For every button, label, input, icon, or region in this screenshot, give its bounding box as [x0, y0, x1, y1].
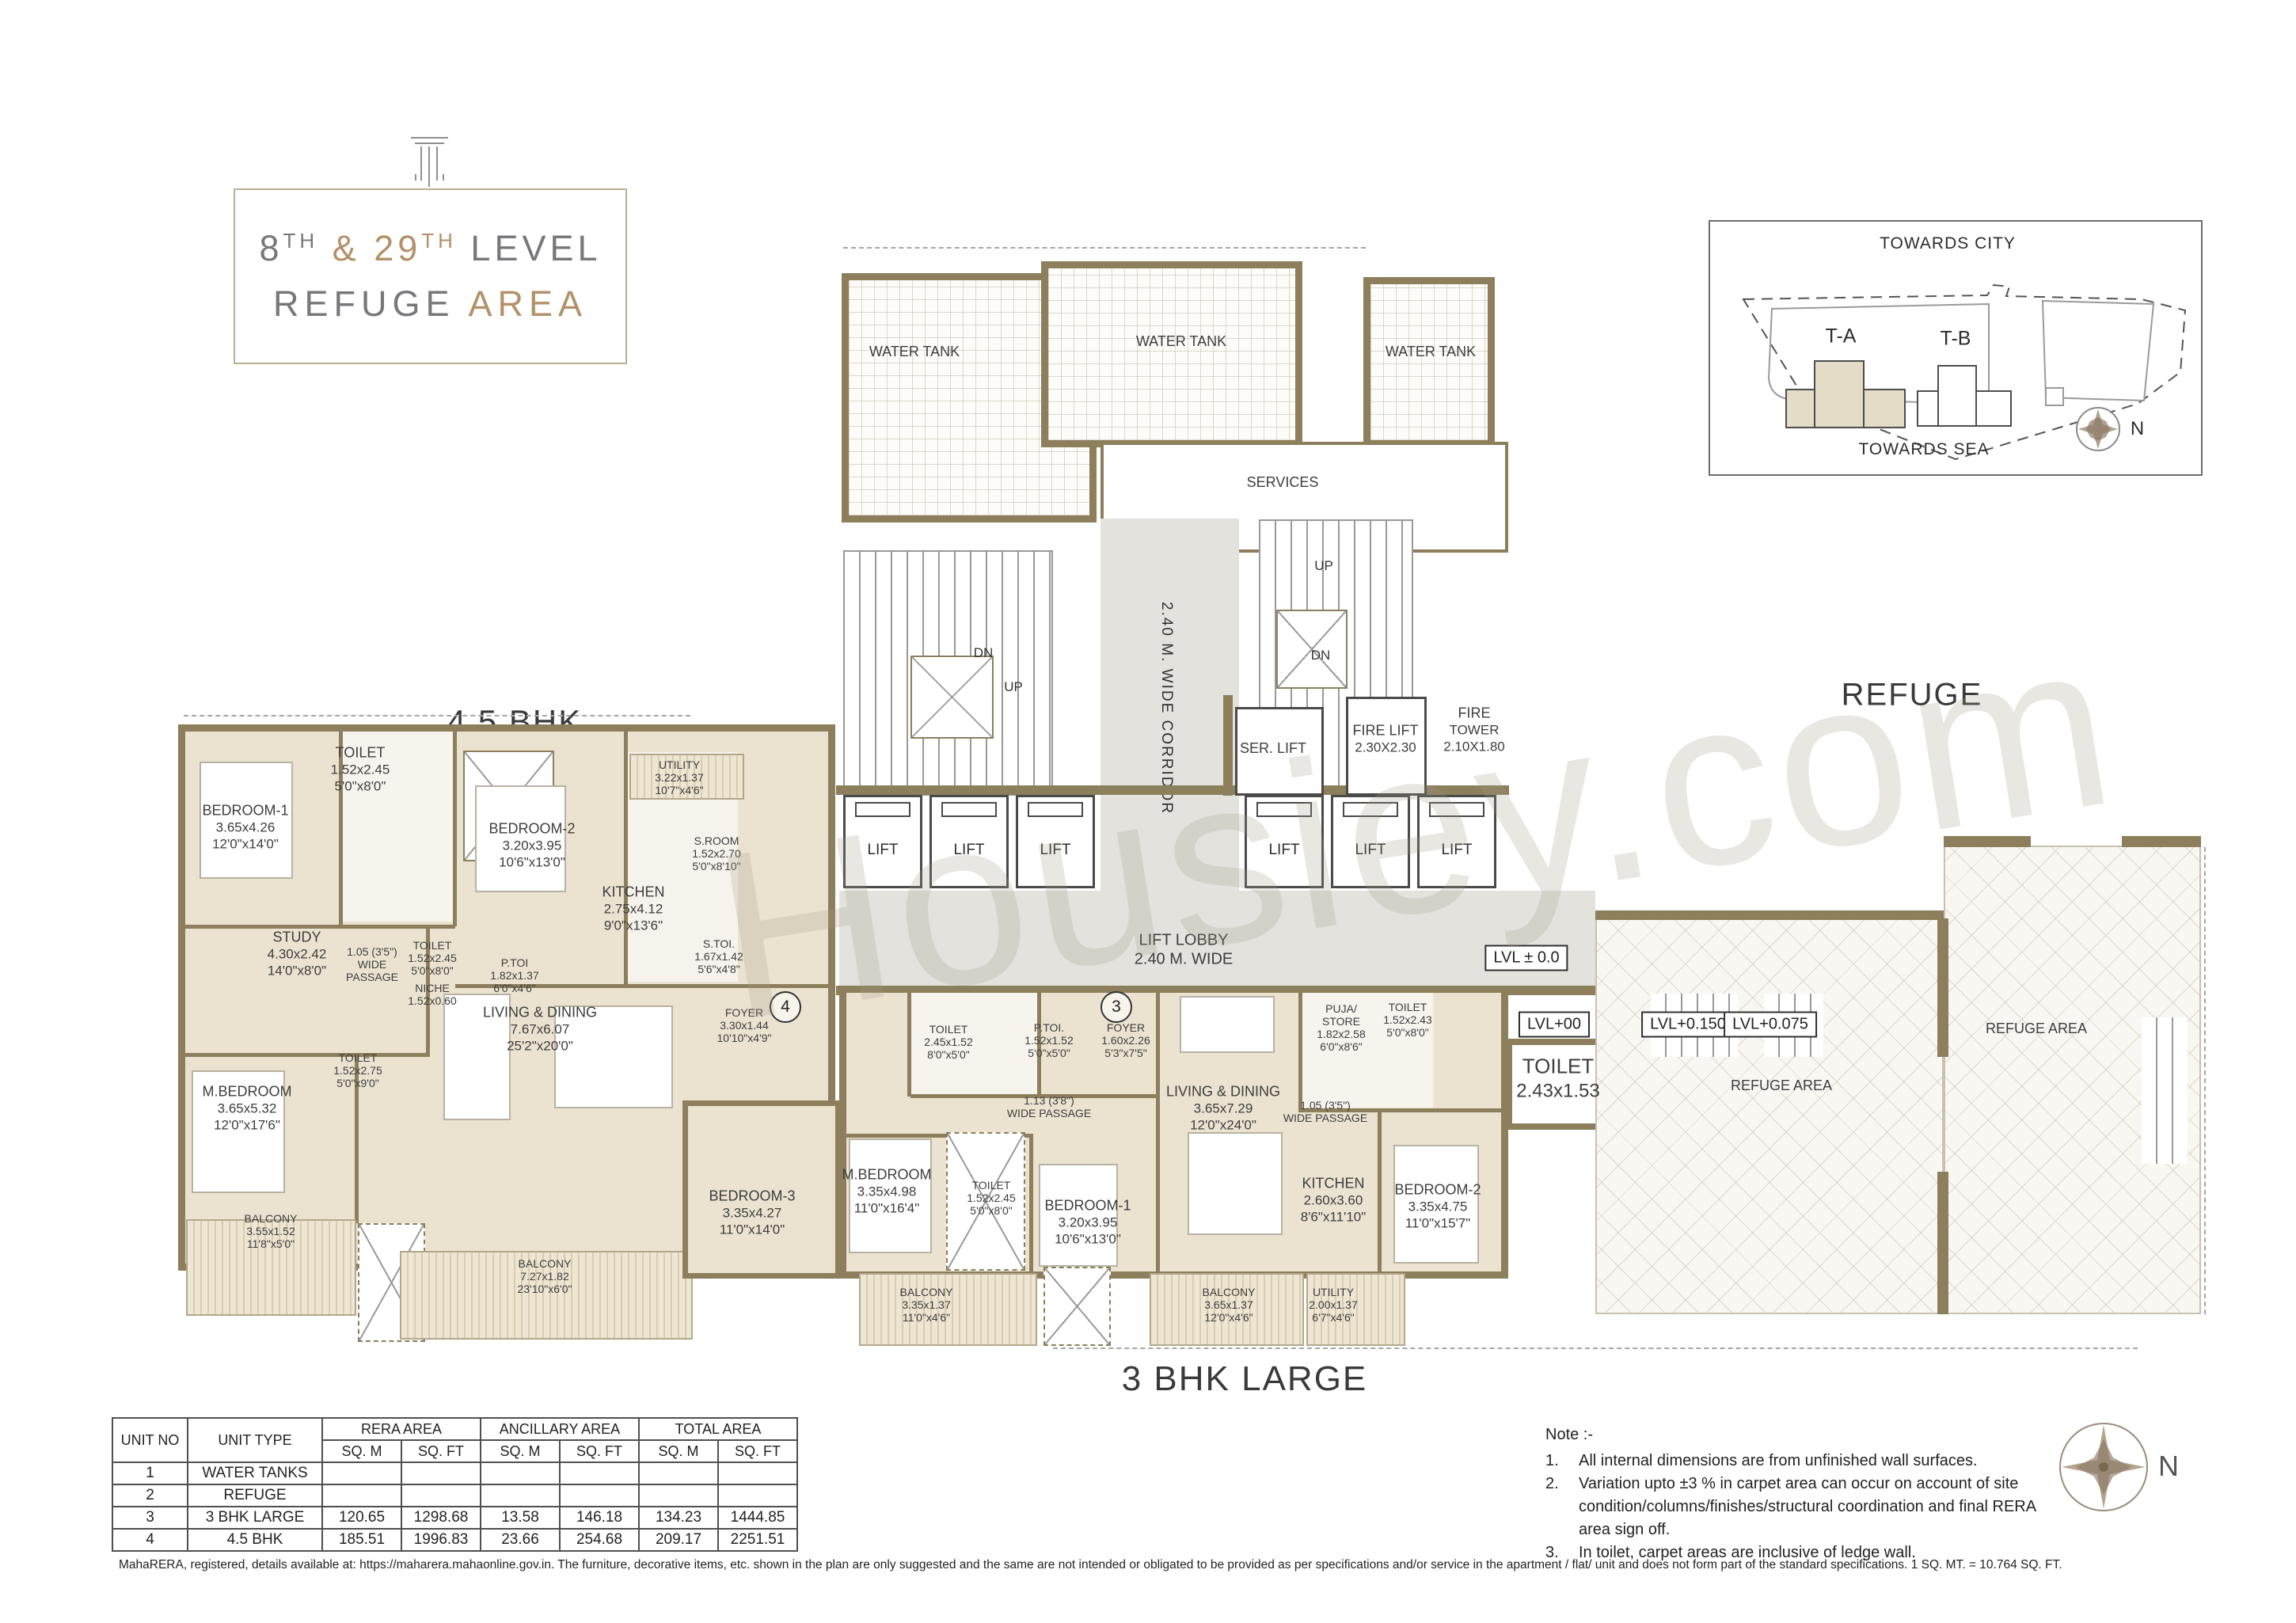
room-label-toilet-r2: TOILET1.52x2.455'0"x8'0" — [967, 1179, 1016, 1217]
room-label-passage-r1: 1.13 (3'8")WIDE PASSAGE — [1007, 1094, 1091, 1119]
table-cell: 1996.83 — [401, 1529, 481, 1551]
key-plan-north-label: N — [2131, 418, 2145, 440]
shaft-right-balcony — [1043, 1267, 1111, 1346]
room-label-living-dining-l: LIVING & DINING7.67x6.0725'2"x20'0" — [483, 1004, 597, 1054]
table-cell — [560, 1462, 639, 1484]
table-cell: 185.51 — [322, 1529, 401, 1551]
room-label-utility-l: UTILITY3.22x1.3710'7"x4'6" — [655, 758, 704, 796]
room-label-toilet-mid-l: TOILET1.52x2.455'0"x8'0" — [408, 939, 457, 977]
lift-3: LIFT — [1016, 795, 1095, 888]
room-label-foyer-l: FOYER3.30x1.4410'10"x4'9" — [717, 1006, 771, 1044]
stair-label-dn-0: DN — [974, 645, 994, 661]
room-label-water-tank-3: WATER TANK — [1386, 344, 1476, 361]
zone-label-refuge: REFUGE — [1842, 678, 1983, 713]
plan-dashed-line — [1053, 1347, 2138, 1349]
col-subheader: SQ. FT — [401, 1440, 481, 1462]
lift-5: LIFT — [1331, 795, 1410, 888]
table-cell — [718, 1462, 797, 1484]
table-cell: 13.58 — [481, 1507, 560, 1529]
room-label-balcony-r1: BALCONY3.35x1.3711'0"x4'6" — [900, 1286, 953, 1324]
room-label-foyer-r: FOYER1.60x2.265'3"x7'5" — [1101, 1021, 1150, 1059]
room-label-balcony-r2: BALCONY3.65x1.3712'0"x4'6" — [1203, 1286, 1256, 1324]
col-header: UNIT NO — [112, 1418, 188, 1462]
dining-table — [1180, 996, 1275, 1053]
zone-label-right-wing: 3 BHK LARGE — [1122, 1359, 1368, 1399]
water-tank-3-area — [1363, 277, 1495, 447]
table-cell: 134.23 — [639, 1507, 718, 1529]
room-label-balcony-l2: BALCONY7.27x1.8223'10"x6'0" — [517, 1257, 572, 1295]
room-label-m-bedroom-l: M.BEDROOM3.65x5.3212'0"x17'6" — [202, 1083, 291, 1133]
table-row-2: 2REFUGE — [112, 1484, 797, 1507]
refuge-louvers — [2142, 1017, 2188, 1164]
room-label-puja-store: PUJA/STORE1.82x2.586'0"x8'6" — [1317, 1002, 1366, 1053]
room-label-bedroom-1-l: BEDROOM-13.65x4.2612'0"x14'0" — [202, 802, 288, 852]
wall — [178, 925, 455, 929]
room-label-s-room: S.ROOM1.52x2.705'0"x8'10" — [692, 834, 741, 872]
key-plan-towards-sea: TOWARDS SEA — [1858, 440, 1989, 459]
room-label-bedroom-1-r: BEDROOM-13.20x3.9510'6"x13'0" — [1044, 1197, 1131, 1247]
wall — [1156, 986, 1160, 1279]
room-label-bedroom-2-r: BEDROOM-23.35x4.7511'0"x15'7" — [1394, 1181, 1481, 1231]
lift-6: LIFT — [1417, 795, 1496, 888]
col-subheader: SQ. M — [639, 1440, 718, 1462]
room-label-ser-lift: SER. LIFT — [1240, 740, 1306, 758]
wall — [2122, 836, 2201, 847]
table-cell: 120.65 — [322, 1507, 401, 1529]
room-label-bedroom-2-l: BEDROOM-23.20x3.9510'6"x13'0" — [488, 820, 575, 870]
room-label-toilet-low-l: TOILET1.52x2.755'0"x9'0" — [333, 1051, 382, 1089]
lift-2: LIFT — [929, 795, 1009, 888]
refuge-area-main — [1595, 918, 1944, 1314]
plan-dashed-line — [2204, 847, 2206, 1314]
table-cell: 4 — [112, 1529, 188, 1551]
level-marker-1: LVL ± 0.0 — [1484, 945, 1568, 971]
note-item-2: 2.Variation upto ±3 % in carpet area can… — [1545, 1473, 2052, 1541]
room-label-toilet-refuge: TOILET2.43x1.53 — [1516, 1055, 1599, 1103]
col-header: UNIT TYPE — [188, 1418, 322, 1462]
table-cell: 3 — [112, 1507, 188, 1529]
column-icon — [400, 135, 459, 190]
room-label-water-tank-1: WATER TANK — [869, 344, 960, 361]
page-title-line2: REFUGE AREA — [273, 283, 587, 325]
key-plan-tower-b: T-B — [1941, 328, 1971, 351]
level-marker-2: LVL+00 — [1519, 1012, 1590, 1038]
room-label-p-toi-l: P.TOI1.82x1.376'0"x4'6" — [490, 956, 539, 994]
wall — [907, 986, 911, 1097]
table-cell — [481, 1484, 560, 1507]
table-cell: WATER TANKS — [188, 1462, 322, 1484]
wall — [1378, 1112, 1382, 1279]
table-cell — [639, 1484, 718, 1507]
room-label-p-toi-r: P.TOI.1.52x1.525'0"x5'0" — [1024, 1021, 1074, 1059]
table-row-1: 1WATER TANKS — [112, 1462, 797, 1484]
room-label-kitchen-r: KITCHEN2.60x3.608'6"x11'10" — [1301, 1175, 1367, 1225]
table-cell: 3 BHK LARGE — [188, 1507, 322, 1529]
table-row-3: 33 BHK LARGE120.651298.6813.58146.18134.… — [112, 1507, 797, 1529]
table-cell: 254.68 — [560, 1529, 639, 1551]
lift-4: LIFT — [1245, 795, 1324, 888]
wall — [1298, 986, 1302, 1112]
wall — [624, 724, 628, 986]
table-cell: 23.66 — [481, 1529, 560, 1551]
table-cell: 2 — [112, 1484, 188, 1507]
table-cell — [322, 1484, 401, 1507]
table-cell — [401, 1462, 481, 1484]
key-plan-tower-a: T-A — [1826, 325, 1857, 348]
table-cell: 2251.51 — [718, 1529, 797, 1551]
notes-block: Note :- 1.All internal dimensions are fr… — [1545, 1423, 2052, 1564]
col-header: ANCILLARY AREA — [481, 1418, 639, 1440]
col-subheader: SQ. FT — [718, 1440, 797, 1462]
room-label-utility-r: UTILITY2.00x1.376'7"x4'6" — [1309, 1286, 1358, 1324]
room-label-living-dining-r: LIVING & DINING3.65x7.2912'0"x24'0" — [1166, 1083, 1280, 1133]
room-label-bedroom-3-r: BEDROOM-33.35x4.2711'0"x14'0" — [709, 1188, 795, 1237]
table-cell: 4.5 BHK — [188, 1529, 322, 1551]
room-label-study: STUDY4.30x2.4214'0"x8'0" — [268, 929, 327, 979]
room-label-balcony-l1: BALCONY3.55x1.5211'8"x5'0" — [245, 1212, 298, 1250]
col-subheader: SQ. M — [322, 1440, 401, 1462]
col-subheader: SQ. M — [481, 1440, 560, 1462]
table-cell — [560, 1484, 639, 1507]
plan-dashed-line — [843, 247, 1366, 249]
corridor-label: 2.40 M. WIDE CORRIDOR — [1158, 602, 1175, 815]
table-cell — [322, 1462, 401, 1484]
water-tank-2-area — [1041, 261, 1302, 447]
table-cell — [639, 1462, 718, 1484]
key-plan: TOWARDS CITY T-A T-B TOWARDS SEA N — [1709, 220, 2203, 476]
col-header: RERA AREA — [322, 1418, 481, 1440]
wall — [1595, 910, 1944, 920]
disclaimer-text: MahaRERA, registered, details available … — [119, 1558, 2288, 1572]
room-label-refuge-area-2: REFUGE AREA — [1986, 1021, 2087, 1038]
wall — [1937, 1172, 1948, 1314]
table-cell — [401, 1484, 481, 1507]
room-label-s-toi: S.TOI.1.67x1.425'6"x4'8" — [694, 937, 743, 975]
key-plan-towards-city: TOWARDS CITY — [1880, 234, 2016, 253]
title-box: 8TH & 29TH LEVEL REFUGE AREA — [234, 188, 627, 364]
room-label-toilet-r3: TOILET1.52x2.435'0"x8'0" — [1383, 1001, 1432, 1039]
wall — [1944, 836, 2031, 847]
room-label-kitchen-l: KITCHEN2.75x4.129'0"x13'6" — [602, 884, 664, 933]
table-row-4: 44.5 BHK185.511996.8323.66254.68209.1722… — [112, 1529, 797, 1551]
compass-north-label: N — [2158, 1450, 2180, 1483]
table-cell: 1298.68 — [401, 1507, 481, 1529]
page-title-line1: 8TH & 29TH LEVEL — [259, 228, 601, 269]
wall — [1937, 918, 1948, 1057]
table-cell — [718, 1484, 797, 1507]
level-marker-4: LVL+0.075 — [1724, 1012, 1817, 1038]
room-label-services: SERVICES — [1247, 474, 1319, 492]
floor-plan-canvas: Housiey.com 8TH & 29TH LEVEL REFUGE AREA… — [0, 0, 2296, 1623]
room-label-water-tank-2: WATER TANK — [1136, 333, 1226, 351]
wall — [453, 724, 457, 926]
room-label-toilet-top-l: TOILET1.52x2.455'0"x8'0" — [331, 744, 390, 794]
room-label-fire-lift: FIRE LIFT2.30X2.30 — [1352, 723, 1418, 757]
room-label-passage-l: 1.05 (3'5")WIDEPASSAGE — [346, 945, 398, 983]
lift-1: LIFT — [843, 795, 922, 888]
unit-marker-3: 3 — [1100, 991, 1132, 1023]
room-label-toilet-r1: TOILET2.45x1.528'0"x5'0" — [924, 1023, 973, 1061]
level-marker-3: LVL+0.150 — [1641, 1012, 1735, 1038]
unit-marker-4: 4 — [770, 991, 801, 1023]
stair-label-up-1: UP — [1004, 679, 1023, 695]
area-table: UNIT NO UNIT TYPE RERA AREA ANCILLARY AR… — [112, 1417, 798, 1552]
plan-dashed-line — [184, 715, 690, 716]
notes-heading: Note :- — [1545, 1423, 2052, 1446]
room-label-refuge-area-1: REFUGE AREA — [1731, 1078, 1832, 1095]
lift-lobby-label: LIFT LOBBY2.40 M. WIDE — [1135, 931, 1233, 970]
wall — [1223, 695, 1233, 796]
wall — [1029, 1134, 1033, 1279]
stair-left-landing — [910, 656, 994, 739]
col-header: TOTAL AREA — [639, 1418, 797, 1440]
table-cell: REFUGE — [188, 1484, 322, 1507]
note-item-1: 1.All internal dimensions are from unfin… — [1545, 1450, 2052, 1473]
room-label-passage-r2: 1.05 (3'5")WIDE PASSAGE — [1283, 1099, 1367, 1124]
table-cell — [481, 1462, 560, 1484]
stair-label-dn-3: DN — [1311, 648, 1331, 663]
table-cell: 146.18 — [560, 1507, 639, 1529]
table-cell: 209.17 — [639, 1529, 718, 1551]
room-label-fire-tower: FIRETOWER2.10X1.80 — [1443, 705, 1505, 754]
room-label-m-bedroom-r: M.BEDROOM3.35x4.9811'0"x16'4" — [842, 1166, 931, 1216]
table-cell: 1 — [112, 1462, 188, 1484]
sofa — [1188, 1132, 1283, 1235]
room-label-niche: NICHE1.52x0.60 — [408, 982, 457, 1007]
stair-label-up-2: UP — [1314, 558, 1333, 574]
wall — [178, 1053, 430, 1057]
col-subheader: SQ. FT — [560, 1440, 639, 1462]
table-cell: 1444.85 — [718, 1507, 797, 1529]
